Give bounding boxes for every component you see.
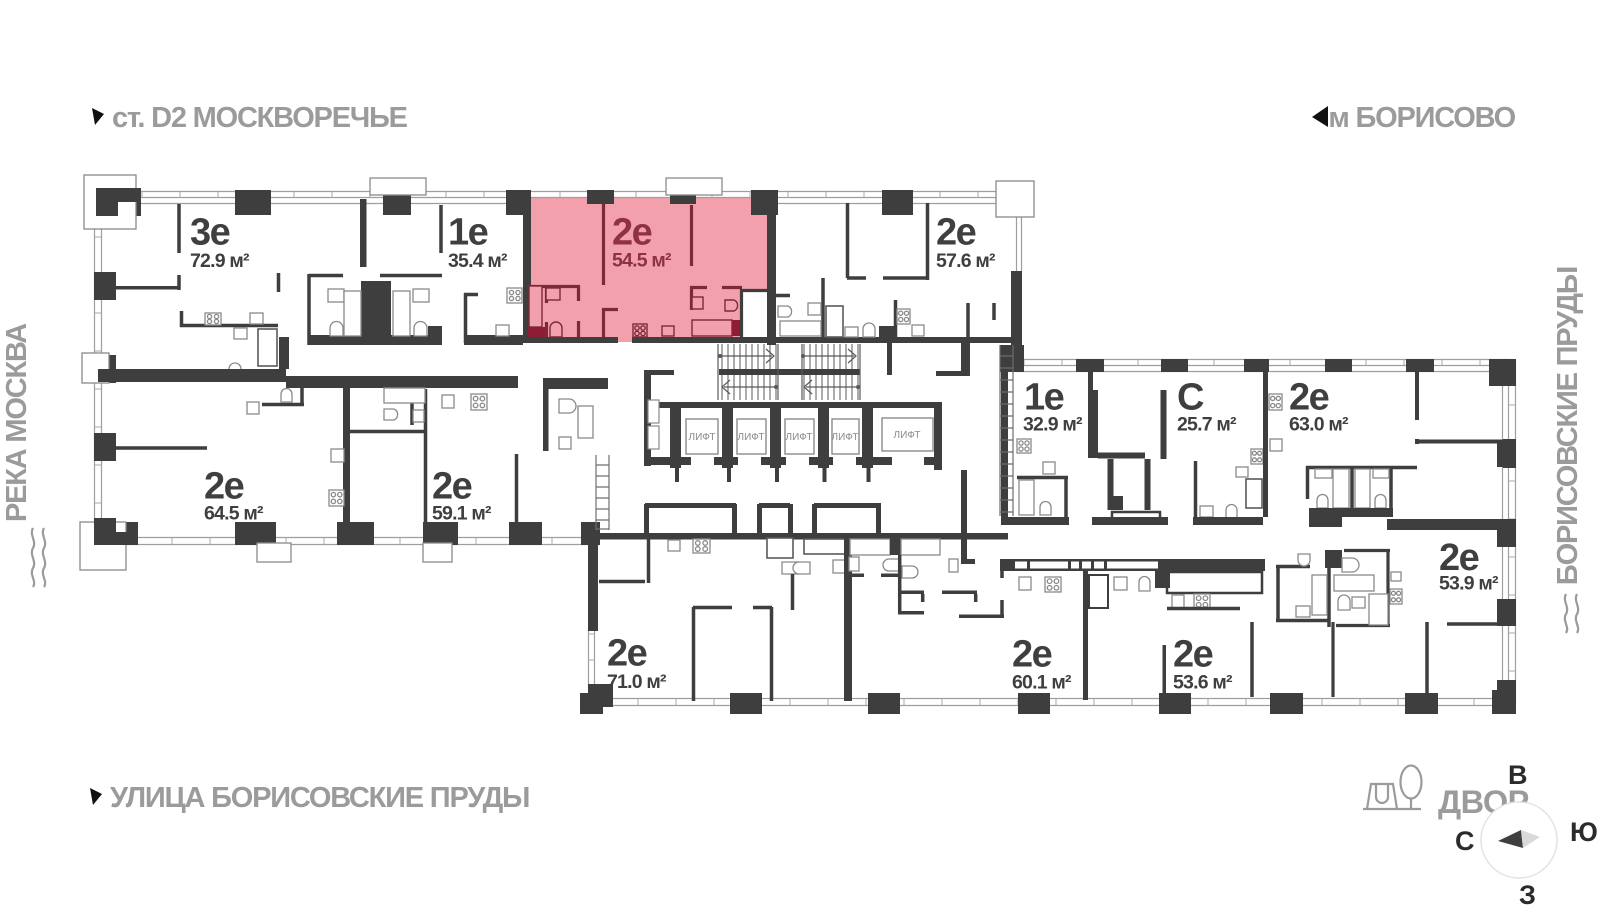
- svg-text:ст. D2 МОСКВОРЕЧЬЕ: ст. D2 МОСКВОРЕЧЬЕ: [112, 102, 408, 134]
- svg-text:ЛИФТ: ЛИФТ: [689, 432, 716, 443]
- svg-text:25.7 м²: 25.7 м²: [1177, 414, 1237, 436]
- svg-text:С: С: [1455, 826, 1475, 856]
- svg-text:2е: 2е: [612, 212, 652, 254]
- svg-text:35.4 м²: 35.4 м²: [448, 250, 508, 272]
- svg-text:Ю: Ю: [1570, 817, 1598, 847]
- svg-text:32.9 м²: 32.9 м²: [1023, 414, 1083, 436]
- svg-text:2е: 2е: [607, 633, 647, 675]
- svg-text:м БОРИСОВО: м БОРИСОВО: [1328, 102, 1515, 134]
- svg-text:2е: 2е: [432, 466, 472, 508]
- svg-text:54.5 м²: 54.5 м²: [612, 250, 672, 272]
- svg-text:59.1 м²: 59.1 м²: [432, 503, 492, 525]
- svg-text:С: С: [1177, 377, 1204, 419]
- svg-text:РЕКА МОСКВА: РЕКА МОСКВА: [1, 323, 33, 522]
- svg-text:63.0 м²: 63.0 м²: [1289, 414, 1349, 436]
- svg-text:ЛИФТ: ЛИФТ: [894, 430, 921, 441]
- svg-text:3е: 3е: [190, 212, 230, 254]
- svg-text:2е: 2е: [1289, 377, 1329, 419]
- svg-text:ЛИФТ: ЛИФТ: [786, 432, 813, 443]
- svg-text:71.0 м²: 71.0 м²: [607, 671, 667, 693]
- svg-text:2е: 2е: [1173, 634, 1213, 676]
- svg-text:60.1 м²: 60.1 м²: [1012, 672, 1072, 694]
- svg-text:ЛИФТ: ЛИФТ: [832, 432, 859, 443]
- svg-text:1е: 1е: [448, 212, 488, 254]
- svg-text:64.5 м²: 64.5 м²: [204, 503, 264, 525]
- svg-text:УЛИЦА БОРИСОВСКИЕ ПРУДЫ: УЛИЦА БОРИСОВСКИЕ ПРУДЫ: [110, 782, 529, 814]
- svg-text:1е: 1е: [1024, 377, 1064, 419]
- svg-text:В: В: [1508, 760, 1528, 790]
- svg-text:53.6 м²: 53.6 м²: [1173, 672, 1233, 694]
- svg-text:53.9 м²: 53.9 м²: [1439, 573, 1499, 595]
- svg-text:2е: 2е: [1012, 634, 1052, 676]
- svg-text:2е: 2е: [204, 466, 244, 508]
- svg-text:З: З: [1519, 880, 1536, 910]
- svg-text:72.9 м²: 72.9 м²: [190, 250, 250, 272]
- svg-text:БОРИСОВСКИЕ ПРУДЫ: БОРИСОВСКИЕ ПРУДЫ: [1552, 267, 1584, 585]
- svg-text:2е: 2е: [936, 212, 976, 254]
- svg-text:ЛИФТ: ЛИФТ: [738, 432, 765, 443]
- svg-text:57.6 м²: 57.6 м²: [936, 250, 996, 272]
